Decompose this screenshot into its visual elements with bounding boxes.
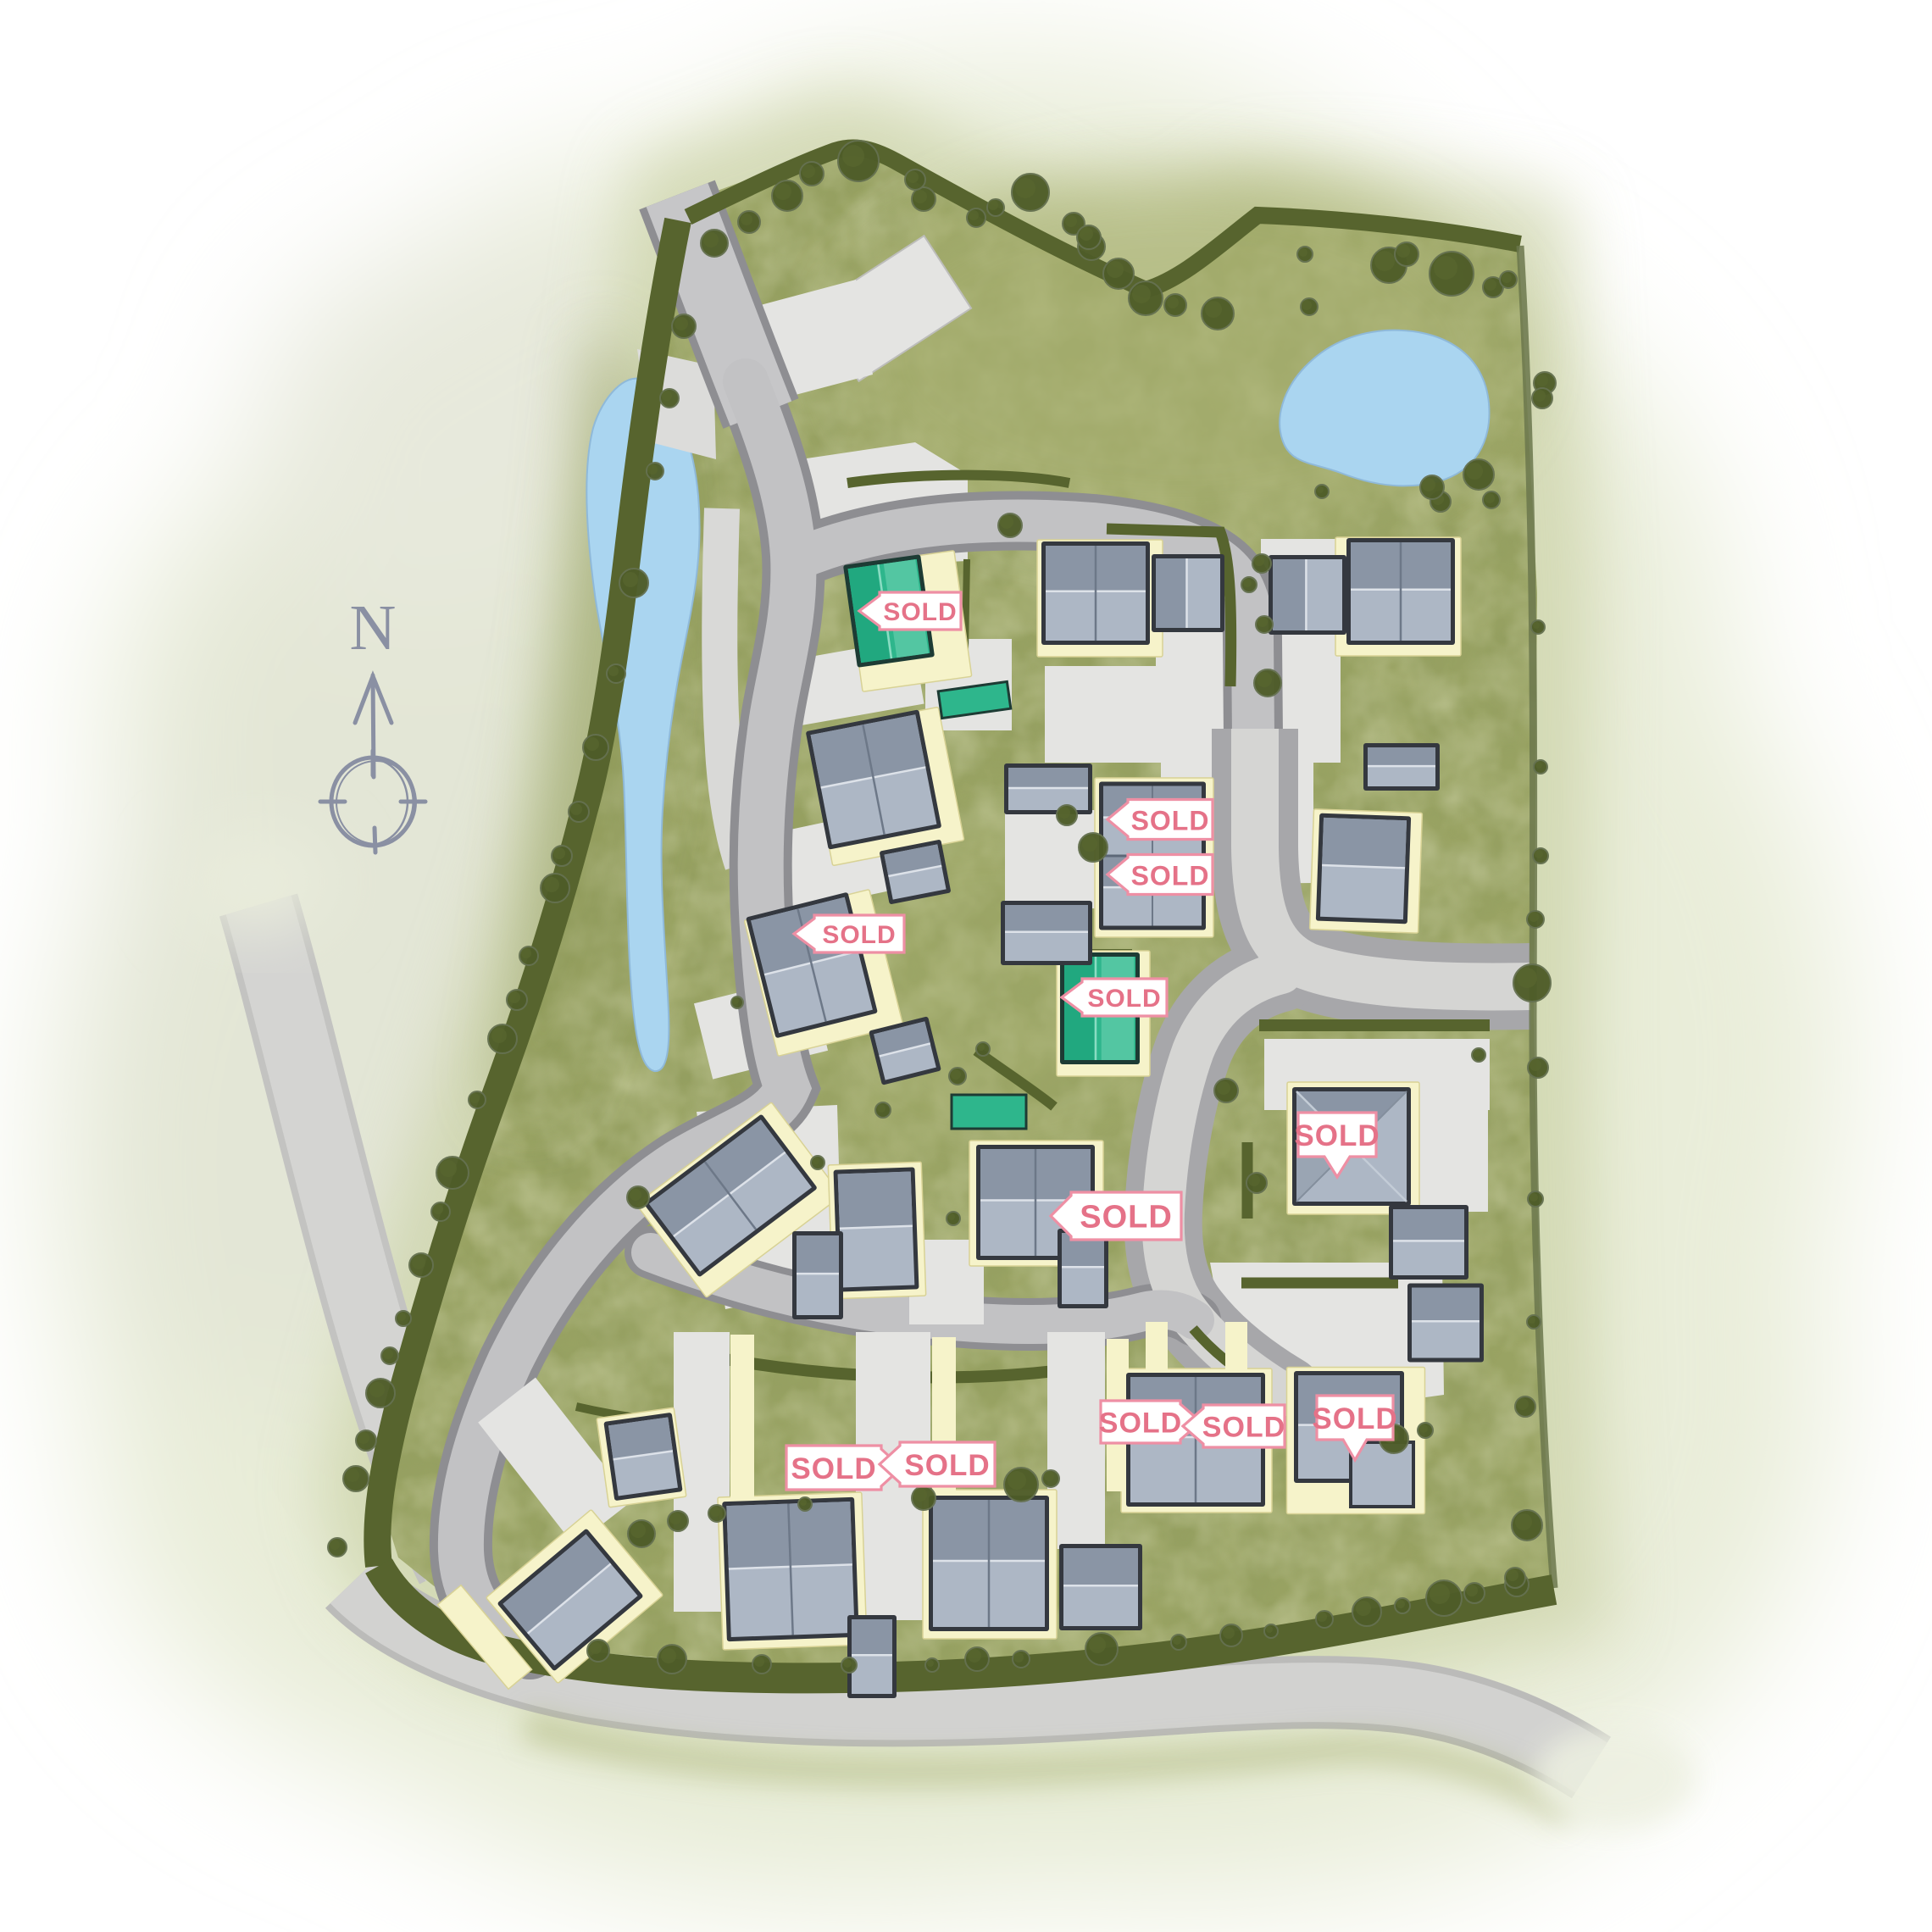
svg-text:SOLD: SOLD	[1294, 1119, 1380, 1152]
svg-text:SOLD: SOLD	[1080, 1200, 1173, 1235]
svg-text:SOLD: SOLD	[883, 598, 957, 626]
svg-text:SOLD: SOLD	[1099, 1407, 1182, 1440]
svg-text:N: N	[350, 592, 397, 663]
svg-text:SOLD: SOLD	[1131, 861, 1210, 891]
svg-text:SOLD: SOLD	[822, 921, 896, 949]
svg-text:SOLD: SOLD	[791, 1452, 876, 1485]
svg-text:SOLD: SOLD	[1131, 806, 1210, 836]
svg-text:SOLD: SOLD	[1312, 1402, 1397, 1435]
svg-text:SOLD: SOLD	[1202, 1412, 1285, 1444]
svg-text:SOLD: SOLD	[1087, 985, 1161, 1013]
svg-text:SOLD: SOLD	[904, 1449, 990, 1482]
